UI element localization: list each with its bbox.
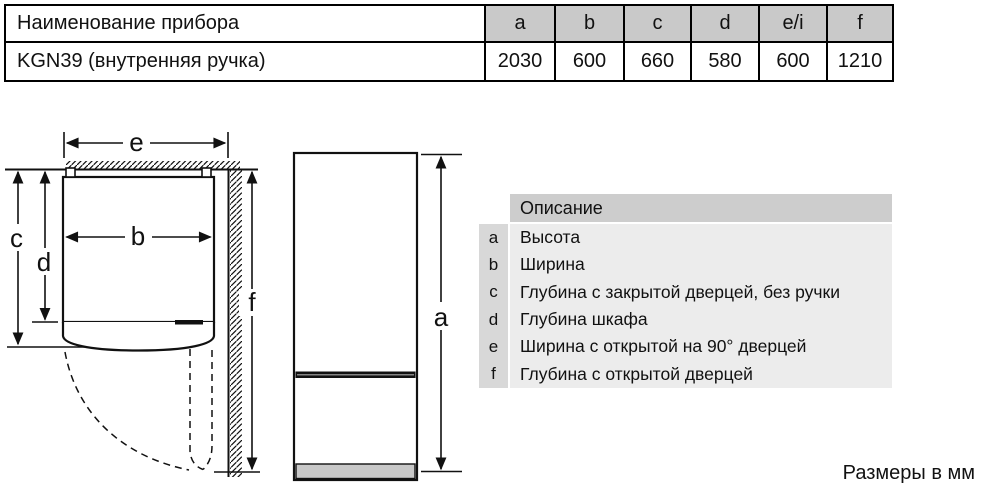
legend-key: f xyxy=(479,361,508,388)
dimension-diagram: e b c d f a xyxy=(0,0,470,500)
legend-key: e xyxy=(479,333,508,360)
legend-label: Ширина xyxy=(510,251,892,278)
wall-hatch-right xyxy=(230,169,242,477)
legend-label: Высота xyxy=(510,224,892,251)
legend-key: a xyxy=(479,224,508,251)
legend-row-f: f Глубина с открытой дверцей xyxy=(479,361,892,388)
top-view xyxy=(5,132,260,477)
legend-label: Глубина шкафа xyxy=(510,306,892,333)
col-header-b: b xyxy=(554,6,623,41)
dim-label-f: f xyxy=(248,287,256,317)
door-swing-arc xyxy=(65,352,189,470)
value-c: 660 xyxy=(623,43,690,80)
legend-key: c xyxy=(479,279,508,306)
page: Наименование прибора a b c d e/i f KGN39… xyxy=(0,0,987,500)
legend-row-c: c Глубина с закрытой дверцей, без ручки xyxy=(479,279,892,306)
dim-label-a: a xyxy=(434,302,449,332)
legend-title: Описание xyxy=(510,194,892,222)
col-header-a: a xyxy=(484,6,554,41)
hinge-left xyxy=(66,168,75,177)
value-d: 580 xyxy=(690,43,758,80)
legend-label: Глубина с открытой дверцей xyxy=(510,361,892,388)
open-door-inner-line xyxy=(190,349,203,470)
col-header-d: d xyxy=(690,6,758,41)
value-b: 600 xyxy=(554,43,623,80)
units-note: Размеры в мм xyxy=(843,462,975,485)
legend-row-d: d Глубина шкафа xyxy=(479,306,892,333)
legend-label: Ширина с открытой на 90° дверцей xyxy=(510,333,892,360)
dim-label-c: c xyxy=(10,223,23,253)
dim-label-b: b xyxy=(131,221,145,251)
open-door-outer-line xyxy=(203,350,212,470)
legend-label: Глубина с закрытой дверцей, без ручки xyxy=(510,279,892,306)
dim-label-e: e xyxy=(129,127,143,157)
front-view-labels: a xyxy=(427,302,455,332)
legend-key: b xyxy=(479,251,508,278)
value-ei: 600 xyxy=(758,43,826,80)
door-handle-mark xyxy=(175,320,203,325)
wall-hatch-top xyxy=(66,161,240,169)
legend-row-b: b Ширина xyxy=(479,251,892,278)
legend: a Высота b Ширина c Глубина с закрытой д… xyxy=(479,224,892,388)
col-header-c: c xyxy=(623,6,690,41)
col-header-f: f xyxy=(826,6,892,41)
fridge-front-outline xyxy=(294,153,417,480)
legend-row-e: e Ширина с открытой на 90° дверцей xyxy=(479,333,892,360)
hinge-right xyxy=(202,168,211,177)
dim-label-d: d xyxy=(37,247,51,277)
plinth xyxy=(296,464,415,479)
value-a: 2030 xyxy=(484,43,554,80)
value-f: 1210 xyxy=(826,43,892,80)
col-header-ei: e/i xyxy=(758,6,826,41)
legend-row-a: a Высота xyxy=(479,224,892,251)
legend-key: d xyxy=(479,306,508,333)
